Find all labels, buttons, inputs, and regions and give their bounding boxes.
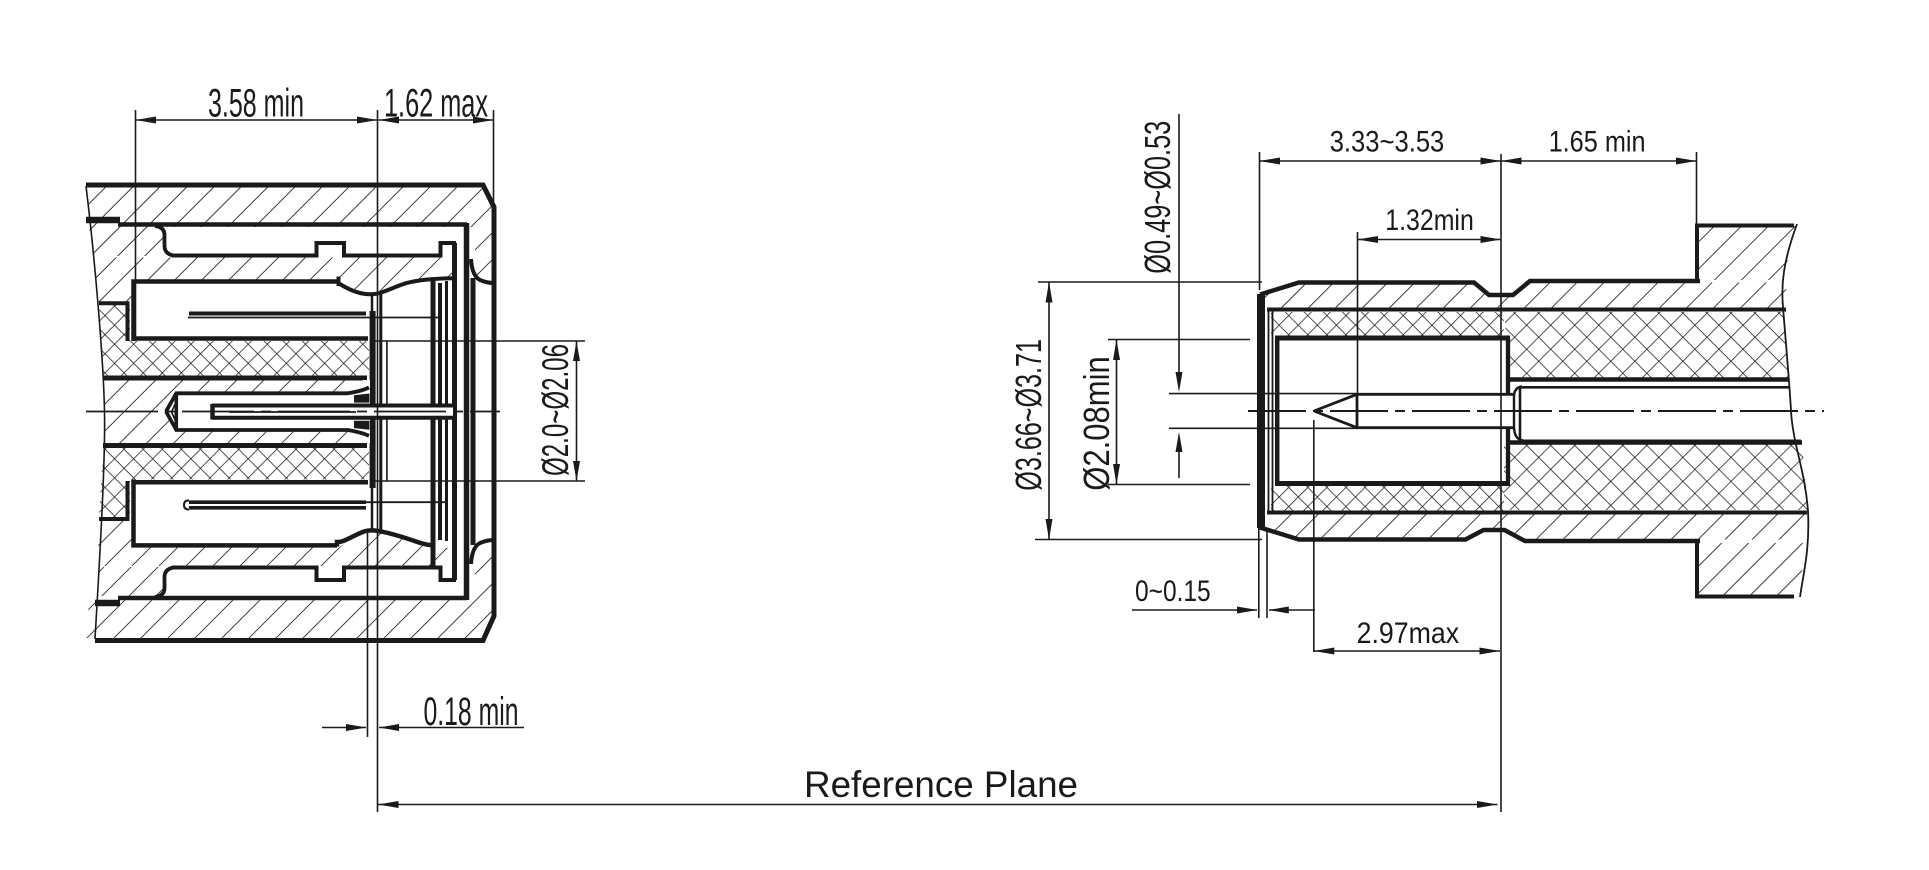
svg-text:3.58 min: 3.58 min [208, 82, 304, 126]
svg-text:Ø0.49~Ø0.53: Ø0.49~Ø0.53 [1137, 121, 1178, 274]
svg-text:0.18 min: 0.18 min [424, 690, 519, 734]
svg-text:Ø2.0~Ø2.06: Ø2.0~Ø2.06 [535, 344, 576, 476]
svg-text:Ø2.08min: Ø2.08min [1076, 356, 1117, 491]
svg-text:Reference Plane: Reference Plane [804, 764, 1078, 805]
svg-text:2.97max: 2.97max [1357, 617, 1460, 650]
svg-text:1.65 min: 1.65 min [1549, 126, 1646, 159]
svg-text:0~0.15: 0~0.15 [1135, 575, 1211, 608]
svg-text:1.62 max: 1.62 max [384, 82, 488, 126]
svg-text:1.32min: 1.32min [1385, 204, 1474, 237]
svg-text:Ø3.66~Ø3.71: Ø3.66~Ø3.71 [1008, 339, 1049, 491]
svg-text:3.33~3.53: 3.33~3.53 [1330, 126, 1445, 159]
